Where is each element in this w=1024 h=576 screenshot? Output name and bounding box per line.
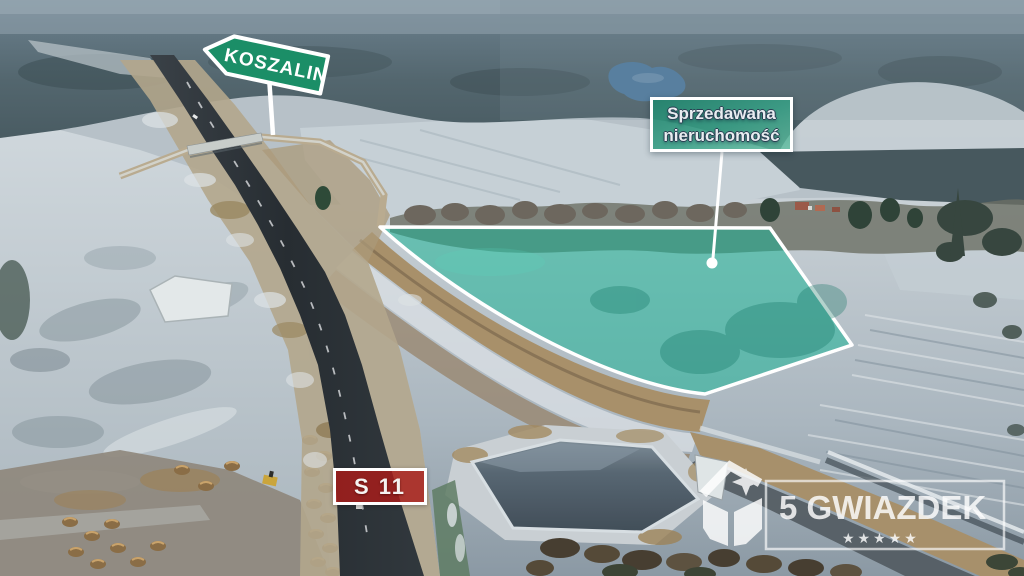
property-for-sale-label: Sprzedawana nieruchomość [650, 97, 793, 152]
property-label-line2: nieruchomość [663, 125, 779, 147]
aerial-photo-scene: KOSZALIN 5 GWIAZDEK ★★★★★ Sprzedawana ni… [0, 0, 1024, 576]
s11-road-sign-label: S 11 [354, 474, 406, 500]
conifer-tree [315, 186, 331, 210]
property-label-line1: Sprzedawana [663, 103, 779, 125]
five-stars: ★★★★★ [842, 530, 920, 546]
s11-road-sign: S 11 [333, 468, 427, 505]
watermark-brand-text: 5 GWIAZDEK [779, 489, 986, 526]
label-connector-dot [707, 258, 718, 269]
concrete-basin [150, 276, 232, 322]
aerial-photo: KOSZALIN 5 GWIAZDEK ★★★★★ [0, 0, 1024, 576]
